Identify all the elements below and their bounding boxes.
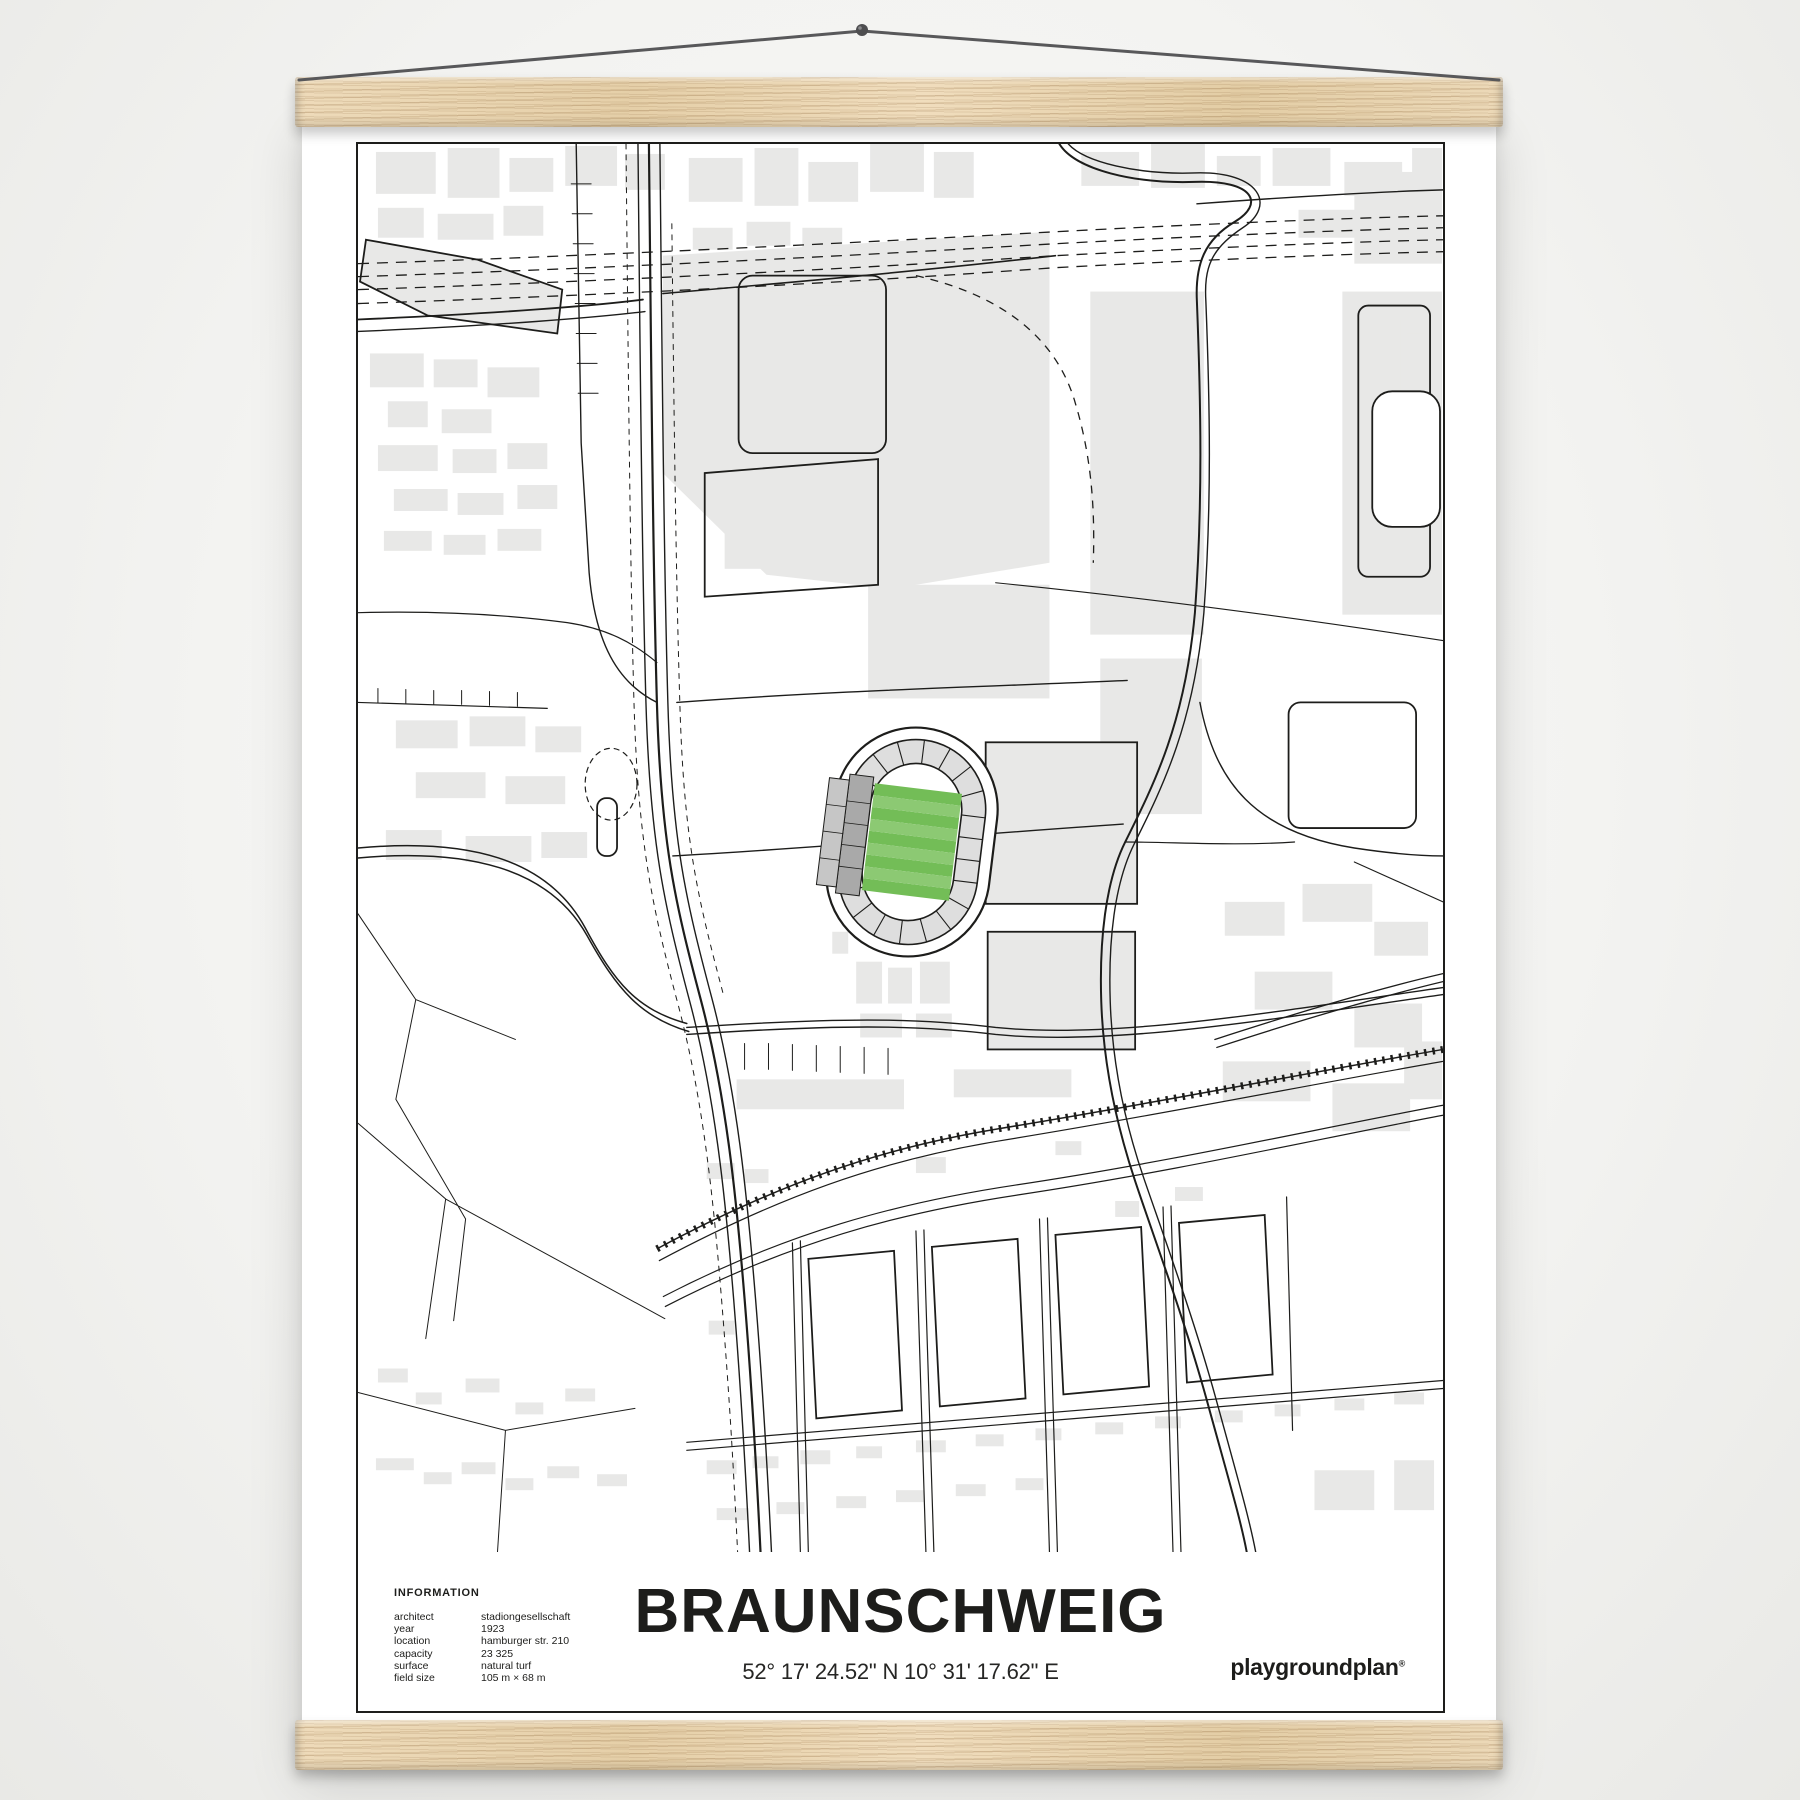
stadium-street-map <box>358 144 1443 1552</box>
product-mockup-scene: INFORMATION architectstadiongesellschaft… <box>0 0 1800 1800</box>
poster-title-block: BRAUNSCHWEIG <box>358 1581 1443 1643</box>
poster: INFORMATION architectstadiongesellschaft… <box>302 112 1496 1760</box>
hanger-string <box>299 31 1499 80</box>
nail-highlight <box>858 26 862 30</box>
brand-logo: playgroundplan® <box>1230 1654 1405 1681</box>
pitch <box>862 783 962 901</box>
registered-trademark-icon: ® <box>1399 1658 1405 1668</box>
stadium <box>809 717 1007 966</box>
wooden-hanger-bar-top <box>295 77 1503 127</box>
city-title: BRAUNSCHWEIG <box>358 1581 1443 1643</box>
info-row-capacity: capacity23 325 <box>394 1648 570 1660</box>
brand-logo-text: playgroundplan <box>1230 1654 1398 1680</box>
poster-border-frame: INFORMATION architectstadiongesellschaft… <box>356 142 1445 1713</box>
wooden-hanger-bar-bottom <box>295 1720 1503 1770</box>
nail-icon <box>856 24 868 36</box>
